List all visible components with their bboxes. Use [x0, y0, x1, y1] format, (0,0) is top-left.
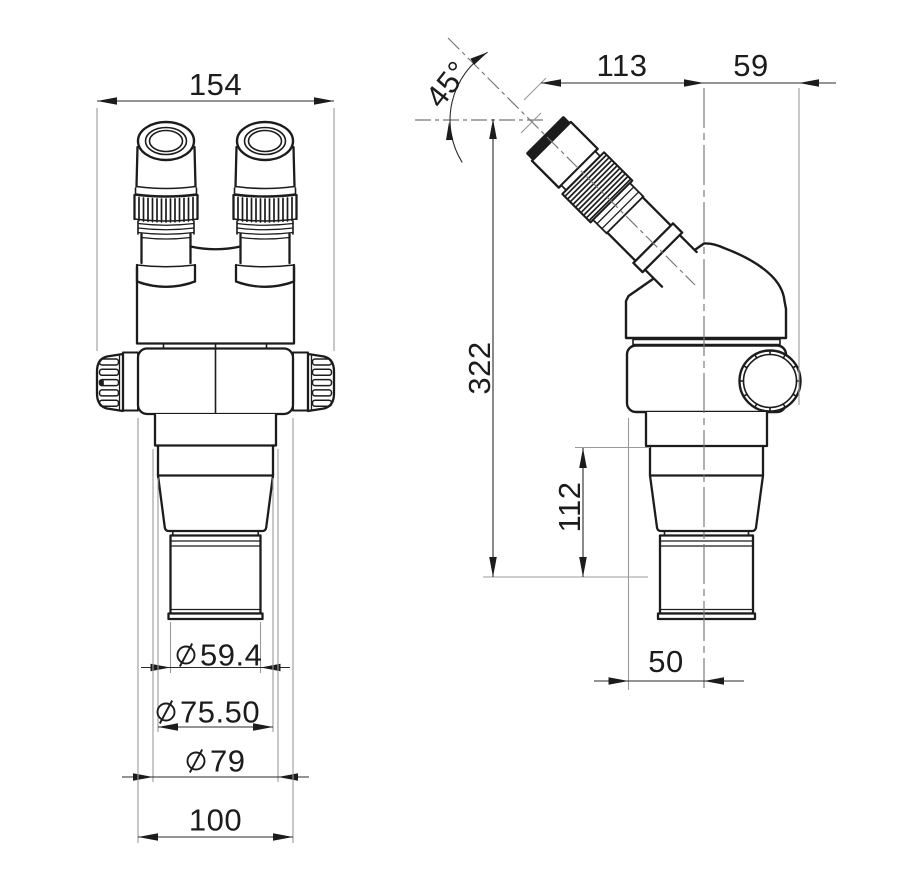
- dim-label-50: 50: [648, 644, 683, 679]
- diameter-symbol: [158, 701, 175, 724]
- dim-label-322: 322: [462, 341, 497, 394]
- dim-label-113: 113: [597, 48, 648, 83]
- focus-knurl-ring: [234, 195, 297, 222]
- focus-knob-side: [740, 351, 801, 412]
- focus-knob-left: [97, 353, 138, 412]
- dim-label-dia-75-50: 75.50: [180, 695, 260, 730]
- microscope-dimension-drawing: 154 59.4 75.50: [0, 0, 907, 889]
- drawing-canvas: 154 59.4 75.50: [0, 0, 907, 889]
- dim-label-100: 100: [189, 803, 242, 838]
- tube-base-collar: [137, 265, 195, 287]
- side-view: [524, 114, 800, 619]
- dim-label-59: 59: [733, 48, 768, 83]
- dim-label-dia-59-4: 59.4: [200, 638, 262, 673]
- dim-label-112: 112: [552, 482, 587, 533]
- dimension-angle-45: 45°: [419, 52, 488, 162]
- focus-knob-right: [293, 353, 334, 412]
- dimension-width-154: 154: [97, 67, 334, 351]
- dim-label-45deg: 45°: [419, 54, 476, 114]
- head-casting-front: [137, 247, 294, 349]
- dimension-height-112: 112: [552, 448, 650, 578]
- dim-label-dia-79: 79: [210, 744, 245, 779]
- objective-lens-rim-side: [658, 614, 755, 620]
- dimension-dia-59-4: 59.4: [141, 622, 290, 673]
- focus-knurl-ring: [135, 195, 198, 222]
- objective-barrel-front: [155, 414, 276, 619]
- dimension-base-100: 100: [138, 418, 293, 843]
- head-body-interface: [633, 340, 780, 345]
- eyepiece-left: [135, 122, 198, 287]
- diameter-symbol: [188, 750, 205, 773]
- front-view: [97, 122, 334, 619]
- diameter-symbol: [178, 644, 195, 667]
- objective-barrel-side: [646, 412, 767, 619]
- objective-lens-rim-front: [169, 614, 263, 620]
- dim-label-154: 154: [189, 67, 242, 102]
- tube-base-collar: [236, 265, 294, 287]
- eyepiece-right: [234, 122, 297, 287]
